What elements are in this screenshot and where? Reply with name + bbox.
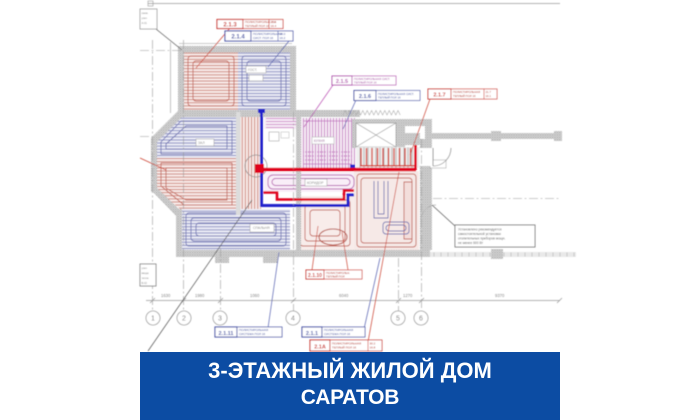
svg-text:В-02: В-02: [142, 281, 148, 285]
svg-text:ТЕПЛЫЙ ПОЛ 16: ТЕПЛЫЙ ПОЛ 16: [354, 80, 377, 84]
svg-text:1060: 1060: [250, 293, 260, 298]
svg-text:самостоятельной установки: самостоятельной установки: [458, 232, 501, 236]
svg-text:ТЕПЛЫЙ ПОЛ 16: ТЕПЛЫЙ ПОЛ 16: [453, 94, 476, 98]
svg-text:2.1.6: 2.1.6: [359, 94, 371, 100]
svg-text:СПАЛЬНЯ: СПАЛЬНЯ: [253, 226, 270, 230]
svg-text:ТЕПЛЫЙ ПОЛ 16: ТЕПЛЫЙ ПОЛ 16: [378, 95, 401, 99]
svg-text:2: 2: [182, 316, 186, 323]
svg-text:9370: 9370: [495, 293, 505, 298]
svg-text:2.1.5: 2.1.5: [336, 79, 348, 85]
svg-text:2.1.7: 2.1.7: [433, 93, 445, 99]
svg-text:16.2: 16.2: [280, 36, 286, 40]
svg-text:1630: 1630: [161, 293, 171, 298]
svg-text:2.1.3: 2.1.3: [223, 23, 237, 29]
svg-text:2.1.11: 2.1.11: [219, 331, 234, 337]
svg-text:1980: 1980: [195, 293, 205, 298]
svg-text:ввода: ввода: [142, 272, 150, 275]
svg-text:ТЕПЛЫЙ ПОЛ 16: ТЕПЛЫЙ ПОЛ 16: [332, 346, 357, 350]
svg-text:16.4: 16.4: [271, 24, 277, 28]
svg-text:16.8: 16.8: [370, 346, 376, 350]
svg-text:ГОСТ.: ГОСТ.: [248, 68, 257, 72]
svg-text:тепла: тепла: [142, 277, 150, 280]
svg-text:6040: 6040: [339, 293, 349, 298]
svg-text:ТЕПЛЫЙ ПОЛ 16: ТЕПЛЫЙ ПОЛ 16: [245, 24, 270, 28]
svg-text:2.1.4: 2.1.4: [231, 35, 245, 41]
svg-text:СИСТЕМА ПОЛ 16: СИСТЕМА ПОЛ 16: [239, 332, 265, 336]
svg-text:КУХНЯ: КУХНЯ: [314, 139, 325, 143]
svg-text:не менее 600 Вт: не менее 600 Вт: [458, 241, 484, 245]
svg-text:5: 5: [396, 316, 400, 323]
svg-text:узел: узел: [142, 267, 148, 270]
svg-text:КОРИДОР: КОРИДОР: [307, 181, 324, 185]
svg-text:Установлено рекомендуется: Установлено рекомендуется: [458, 228, 502, 232]
svg-text:СИСТ. ПОЛ 16: СИСТ. ПОЛ 16: [253, 36, 273, 40]
svg-text:отопительных приборов мощн.: отопительных приборов мощн.: [458, 237, 505, 241]
svg-text:САРАТОВ: САРАТОВ: [301, 386, 400, 409]
svg-text:1: 1: [151, 316, 155, 323]
svg-text:СИСТЕМА ПОЛ 16: СИСТЕМА ПОЛ 16: [324, 332, 350, 336]
svg-text:2.1А: 2.1А: [314, 344, 326, 350]
svg-text:2.1.1: 2.1.1: [306, 331, 318, 337]
svg-text:16.1: 16.1: [486, 94, 492, 98]
svg-text:3: 3: [218, 316, 222, 323]
svg-text:3-ЭТАЖНЫЙ ЖИЛОЙ ДОМ: 3-ЭТАЖНЫЙ ЖИЛОЙ ДОМ: [208, 358, 492, 383]
svg-text:1270: 1270: [403, 293, 413, 298]
svg-text:узел: узел: [142, 17, 148, 20]
svg-text:4: 4: [291, 316, 295, 323]
svg-text:ТЕПЛЫЙ ПОЛ: ТЕПЛЫЙ ПОЛ: [326, 274, 345, 278]
svg-text:2.1.10: 2.1.10: [308, 273, 322, 279]
svg-text:смеж.: смеж.: [142, 12, 149, 15]
svg-text:А-01: А-01: [142, 21, 148, 25]
svg-text:6: 6: [419, 316, 423, 323]
svg-text:ЗАЛ: ЗАЛ: [198, 141, 205, 145]
